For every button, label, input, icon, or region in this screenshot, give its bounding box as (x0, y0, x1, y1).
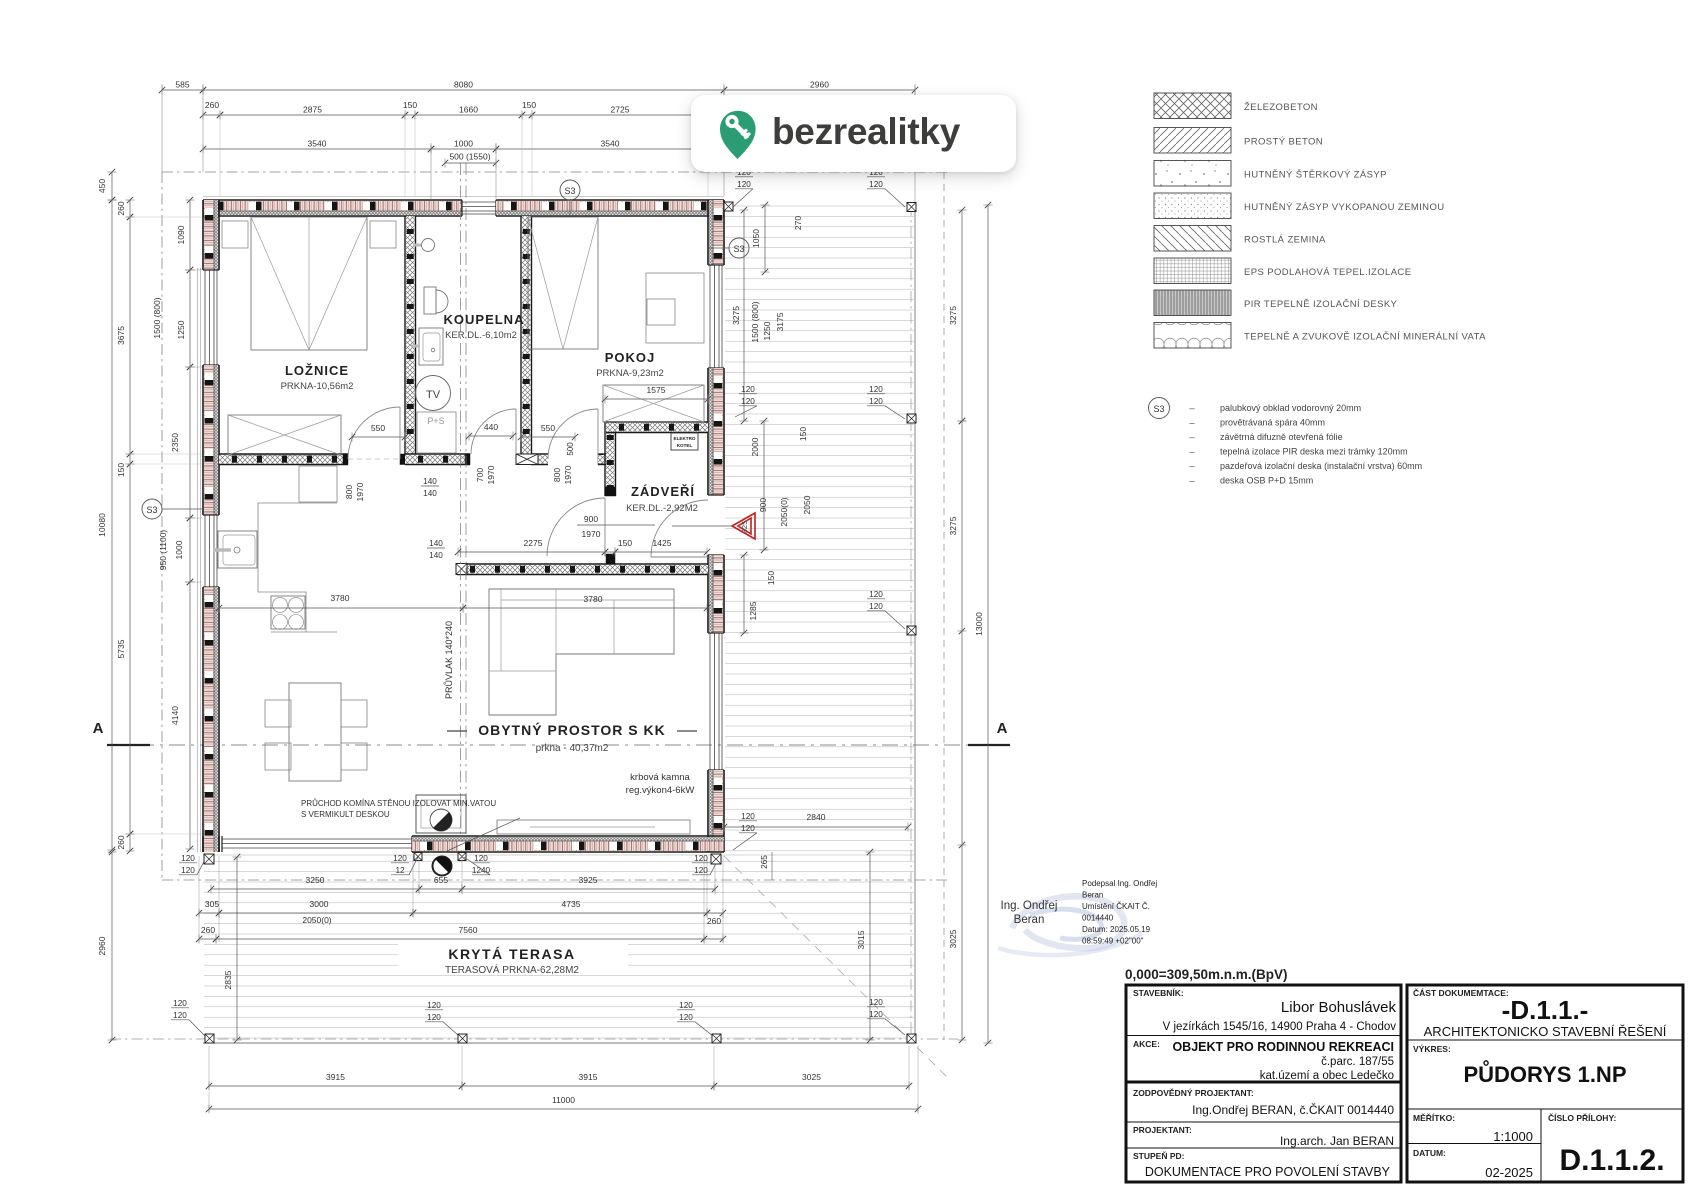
svg-text:120: 120 (741, 397, 755, 406)
svg-text:2050: 2050 (802, 495, 812, 514)
svg-text:1:1000: 1:1000 (1493, 1129, 1533, 1144)
svg-text:P+S: P+S (427, 416, 444, 426)
svg-text:HUTNĚNÝ ZÁSYP VYKOPANOU ZEMINO: HUTNĚNÝ ZÁSYP VYKOPANOU ZEMINOU (1244, 202, 1445, 213)
svg-text:Ing.arch. Jan BERAN: Ing.arch. Jan BERAN (1280, 1134, 1394, 1148)
svg-text:STAVEBNÍK:: STAVEBNÍK: (1133, 988, 1184, 998)
svg-text:120: 120 (869, 397, 883, 406)
svg-text:PRŮVLAK 140*240: PRŮVLAK 140*240 (443, 621, 454, 699)
svg-text:120: 120 (181, 866, 195, 875)
svg-text:provětrávaná spára 40mm: provětrávaná spára 40mm (1220, 418, 1325, 428)
svg-text:ČÁST DOKUMEMTACE:: ČÁST DOKUMEMTACE: (1413, 987, 1509, 998)
svg-text:3915: 3915 (326, 1072, 345, 1082)
svg-text:500 (1550): 500 (1550) (449, 152, 490, 162)
svg-text:585: 585 (175, 80, 189, 90)
svg-text:0014440: 0014440 (1082, 914, 1114, 923)
svg-text:3175: 3175 (775, 312, 785, 331)
svg-text:450: 450 (97, 179, 107, 193)
svg-text:2725: 2725 (611, 105, 630, 115)
svg-text:–: – (1189, 432, 1194, 442)
svg-text:120: 120 (741, 812, 755, 821)
svg-text:AKCE:: AKCE: (1133, 1039, 1160, 1049)
svg-text:120: 120 (427, 1013, 441, 1022)
svg-text:TEPELNĚ A ZVUKOVĚ IZOLAČNÍ MIN: TEPELNĚ A ZVUKOVĚ IZOLAČNÍ MINERÁLNÍ VAT… (1244, 332, 1486, 343)
svg-text:120: 120 (474, 854, 488, 863)
svg-text:5735: 5735 (116, 639, 126, 658)
svg-text:–: – (1189, 418, 1194, 428)
svg-text:270: 270 (793, 216, 803, 230)
svg-text:ELEKTRO: ELEKTRO (674, 436, 696, 441)
svg-text:ROSTLÁ ZEMINA: ROSTLÁ ZEMINA (1244, 235, 1326, 246)
svg-text:3540: 3540 (308, 139, 327, 149)
svg-text:OBYTNÝ PROSTOR S KK: OBYTNÝ PROSTOR S KK (478, 721, 666, 738)
svg-text:140: 140 (429, 539, 443, 548)
svg-text:KER.DL.-6,10m2: KER.DL.-6,10m2 (445, 330, 517, 341)
svg-text:A: A (997, 720, 1008, 737)
svg-text:120: 120 (741, 824, 755, 833)
svg-text:závětrná difuzně otevřená fóli: závětrná difuzně otevřená fólie (1220, 432, 1343, 442)
svg-text:120: 120 (679, 1001, 693, 1010)
svg-text:S3: S3 (733, 244, 744, 254)
svg-text:120: 120 (869, 180, 883, 189)
svg-text:OBJEKT PRO RODINNOU REKREACI: OBJEKT PRO RODINNOU REKREACI (1172, 1040, 1394, 1054)
svg-text:KRYTÁ TERASA: KRYTÁ TERASA (448, 946, 575, 962)
svg-text:PRKNA-9,23m2: PRKNA-9,23m2 (596, 368, 664, 379)
svg-text:KER.DL.-2,92M2: KER.DL.-2,92M2 (626, 503, 698, 514)
svg-text:150: 150 (798, 427, 808, 441)
svg-text:120: 120 (741, 385, 755, 394)
svg-text:120: 120 (869, 998, 883, 1007)
svg-text:TV: TV (426, 389, 441, 401)
svg-text:pazdeřová izolační deska (inst: pazdeřová izolační deska (instalační vrs… (1220, 461, 1422, 471)
svg-text:950 (1100): 950 (1100) (158, 530, 168, 571)
svg-text:D.1.1.2.: D.1.1.2. (1559, 1144, 1664, 1177)
svg-text:3915: 3915 (579, 1072, 598, 1082)
svg-text:1970: 1970 (582, 529, 601, 539)
svg-text:11000: 11000 (552, 1095, 575, 1105)
svg-text:655: 655 (434, 875, 448, 885)
svg-text:2050(0): 2050(0) (779, 497, 789, 526)
svg-text:500: 500 (566, 442, 575, 456)
svg-text:Ing.Ondřej BERAN, č.ČKAIT 0014: Ing.Ondřej BERAN, č.ČKAIT 0014440 (1192, 1102, 1394, 1117)
svg-text:1575: 1575 (647, 385, 666, 395)
svg-text:EPS PODLAHOVÁ TEPEL.IZOLACE: EPS PODLAHOVÁ TEPEL.IZOLACE (1244, 267, 1411, 278)
svg-text:ŽELEZOBETON: ŽELEZOBETON (1244, 102, 1318, 113)
svg-text:1000: 1000 (174, 540, 184, 559)
svg-text:325: 325 (740, 521, 749, 534)
svg-text:–: – (1189, 476, 1194, 486)
svg-text:02-2025: 02-2025 (1485, 1165, 1533, 1180)
svg-text:tepelná izolace PIR deska mezi: tepelná izolace PIR deska mezi trámky 12… (1220, 447, 1408, 457)
svg-text:4735: 4735 (562, 899, 581, 909)
svg-text:120: 120 (393, 854, 407, 863)
svg-text:palubkový obklad vodorovný 20m: palubkový obklad vodorovný 20mm (1220, 403, 1361, 413)
svg-text:1050: 1050 (751, 229, 761, 248)
svg-text:1425: 1425 (653, 538, 672, 548)
svg-text:13000: 13000 (974, 612, 984, 636)
svg-text:550: 550 (371, 423, 385, 433)
svg-text:140: 140 (423, 477, 437, 486)
svg-text:3250: 3250 (306, 875, 325, 885)
svg-text:S VERMIKULT DESKOU: S VERMIKULT DESKOU (301, 810, 390, 819)
svg-text:-D.1.1.-: -D.1.1.- (1502, 995, 1589, 1025)
svg-text:PROSTÝ BETON: PROSTÝ BETON (1244, 137, 1323, 148)
svg-text:150: 150 (618, 538, 632, 548)
svg-text:3275: 3275 (948, 306, 958, 325)
svg-text:3275: 3275 (948, 516, 958, 535)
svg-text:120: 120 (173, 999, 187, 1008)
svg-text:Umístění ČKAIT Č.: Umístění ČKAIT Č. (1082, 902, 1150, 911)
svg-text:900: 900 (584, 514, 598, 524)
svg-text:PROJEKTANT:: PROJEKTANT: (1133, 1125, 1192, 1135)
svg-text:Ing. Ondřej: Ing. Ondřej (1001, 900, 1058, 912)
svg-text:7560: 7560 (459, 925, 478, 935)
svg-text:V jezírkách 1545/16, 14900 Pra: V jezírkách 1545/16, 14900 Praha 4 - Cho… (1163, 1021, 1397, 1033)
svg-text:120: 120 (737, 180, 751, 189)
svg-text:1500 (800): 1500 (800) (750, 301, 760, 342)
svg-text:VÝKRES:: VÝKRES: (1413, 1043, 1451, 1054)
svg-text:HUTNĚNÝ ŠTĚRKOVÝ ZÁSYP: HUTNĚNÝ ŠTĚRKOVÝ ZÁSYP (1244, 170, 1387, 181)
svg-text:800: 800 (552, 468, 562, 482)
svg-text:120: 120 (181, 854, 195, 863)
svg-text:ZODPOVĚDNÝ PROJEKTANT:: ZODPOVĚDNÝ PROJEKTANT: (1133, 1087, 1254, 1098)
svg-text:120: 120 (869, 385, 883, 394)
svg-text:260: 260 (707, 916, 721, 926)
svg-text:A: A (93, 720, 104, 737)
svg-text:DOKUMENTACE PRO POVOLENÍ STAVB: DOKUMENTACE PRO POVOLENÍ STAVBY (1145, 1164, 1391, 1179)
svg-text:PIR TEPELNĚ IZOLAČNÍ DESKY: PIR TEPELNĚ IZOLAČNÍ DESKY (1244, 299, 1398, 310)
svg-text:120: 120 (869, 590, 883, 599)
svg-text:č.parc. 187/55: č.parc. 187/55 (1321, 1056, 1394, 1068)
svg-text:900: 900 (758, 498, 768, 512)
svg-text:1090: 1090 (176, 225, 186, 244)
svg-text:POKOJ: POKOJ (605, 350, 656, 365)
svg-text:260: 260 (205, 100, 219, 110)
svg-text:150: 150 (766, 571, 776, 585)
svg-text:Libor Bohuslávek: Libor Bohuslávek (1281, 999, 1397, 1016)
svg-text:STUPEŇ PD:: STUPEŇ PD: (1133, 1150, 1185, 1161)
svg-text:prkna - 40,37m2: prkna - 40,37m2 (536, 743, 609, 754)
svg-text:2840: 2840 (807, 812, 826, 822)
svg-text:3540: 3540 (601, 139, 620, 149)
svg-text:2050(0): 2050(0) (302, 915, 331, 925)
svg-text:PRKNA-10,56m2: PRKNA-10,56m2 (281, 381, 354, 392)
svg-text:kat.území a obec Ledečko: kat.území a obec Ledečko (1260, 1070, 1394, 1082)
svg-text:1000: 1000 (454, 139, 473, 149)
svg-text:800: 800 (344, 485, 354, 499)
svg-text:–: – (1189, 461, 1194, 471)
svg-text:deska OSB P+D 15mm: deska OSB P+D 15mm (1220, 476, 1313, 486)
svg-text:440: 440 (484, 422, 498, 432)
svg-text:S3: S3 (146, 505, 157, 515)
svg-text:700: 700 (475, 468, 485, 482)
svg-text:3675: 3675 (116, 326, 126, 345)
svg-text:reg.výkon4-6kW: reg.výkon4-6kW (626, 785, 695, 796)
svg-text:120: 120 (173, 1011, 187, 1020)
svg-text:120: 120 (679, 1013, 693, 1022)
svg-text:3275: 3275 (731, 306, 741, 325)
svg-text:12: 12 (395, 866, 405, 875)
svg-text:1250: 1250 (176, 320, 186, 339)
svg-text:0,000=309,50m.n.m.(BpV): 0,000=309,50m.n.m.(BpV) (1125, 967, 1287, 982)
svg-text:DATUM:: DATUM: (1413, 1148, 1446, 1158)
svg-text:1500 (800): 1500 (800) (152, 297, 162, 338)
svg-text:260: 260 (201, 925, 215, 935)
svg-text:1250: 1250 (762, 321, 772, 340)
svg-text:150: 150 (403, 100, 417, 110)
svg-text:KOTEL: KOTEL (677, 443, 693, 448)
svg-text:LOŽNICE: LOŽNICE (285, 363, 349, 378)
svg-text:8080: 8080 (454, 80, 473, 90)
svg-text:–: – (1189, 447, 1194, 457)
svg-text:140: 140 (423, 489, 437, 498)
svg-text:305: 305 (205, 899, 219, 909)
svg-text:120: 120 (869, 1010, 883, 1019)
svg-text:ČÍSLO PŘÍLOHY:: ČÍSLO PŘÍLOHY: (1548, 1112, 1616, 1123)
svg-text:120: 120 (694, 866, 708, 875)
svg-text:Beran: Beran (1082, 891, 1103, 900)
svg-text:3780: 3780 (331, 593, 350, 603)
svg-text:120: 120 (694, 854, 708, 863)
svg-text:KOUPELNA: KOUPELNA (444, 312, 525, 327)
svg-text:3925: 3925 (579, 875, 598, 885)
svg-text:S3: S3 (564, 186, 575, 196)
svg-text:S3: S3 (1153, 404, 1164, 414)
svg-text:2875: 2875 (303, 105, 322, 115)
svg-text:3025: 3025 (802, 1072, 821, 1082)
svg-text:Datum: 2025.05.19: Datum: 2025.05.19 (1082, 925, 1151, 934)
svg-text:–: – (1189, 403, 1194, 413)
svg-text:260: 260 (116, 835, 126, 849)
svg-text:2275: 2275 (524, 538, 543, 548)
svg-text:260: 260 (116, 201, 126, 215)
svg-text:PRŮCHOD KOMÍNA STĚNOU IZOLOVAT: PRŮCHOD KOMÍNA STĚNOU IZOLOVAT MIN.VATOU (301, 799, 496, 808)
svg-text:1970: 1970 (486, 465, 496, 484)
svg-text:1285: 1285 (748, 601, 758, 620)
svg-text:150: 150 (116, 463, 126, 477)
svg-text:08:59:49 +02"00": 08:59:49 +02"00" (1082, 937, 1144, 946)
svg-text:2960: 2960 (97, 936, 107, 955)
svg-text:Podepsal Ing. Ondřej: Podepsal Ing. Ondřej (1082, 879, 1157, 888)
svg-text:krbová kamna: krbová kamna (630, 772, 690, 783)
svg-text:1970: 1970 (563, 465, 573, 484)
svg-text:ARCHITEKTONICKO STAVEBNÍ ŘEŠEN: ARCHITEKTONICKO STAVEBNÍ ŘEŠENÍ (1424, 1024, 1667, 1039)
svg-text:Beran: Beran (1014, 914, 1045, 926)
svg-text:1970: 1970 (355, 482, 365, 501)
svg-text:3000: 3000 (310, 899, 329, 909)
svg-text:3780: 3780 (584, 594, 603, 604)
svg-text:10080: 10080 (97, 513, 107, 537)
svg-text:120: 120 (869, 602, 883, 611)
svg-text:265: 265 (760, 855, 769, 869)
svg-text:2000: 2000 (750, 437, 760, 456)
svg-text:2960: 2960 (810, 80, 829, 90)
svg-text:120: 120 (427, 1001, 441, 1010)
svg-text:150: 150 (522, 100, 536, 110)
svg-text:2350: 2350 (170, 433, 180, 452)
svg-text:4140: 4140 (170, 706, 180, 725)
svg-text:140: 140 (429, 551, 443, 560)
svg-text:PŮDORYS 1.NP: PŮDORYS 1.NP (1463, 1059, 1626, 1087)
svg-text:TERASOVÁ PRKNA-62,28M2: TERASOVÁ PRKNA-62,28M2 (445, 963, 579, 976)
svg-text:3025: 3025 (948, 929, 958, 948)
svg-text:MĚŘÍTKO:: MĚŘÍTKO: (1413, 1112, 1455, 1123)
svg-text:2835: 2835 (223, 970, 233, 989)
svg-text:550: 550 (541, 423, 555, 433)
svg-text:1660: 1660 (459, 105, 478, 115)
svg-text:ZÁDVEŘÍ: ZÁDVEŘÍ (631, 484, 695, 499)
svg-text:3015: 3015 (856, 930, 866, 949)
